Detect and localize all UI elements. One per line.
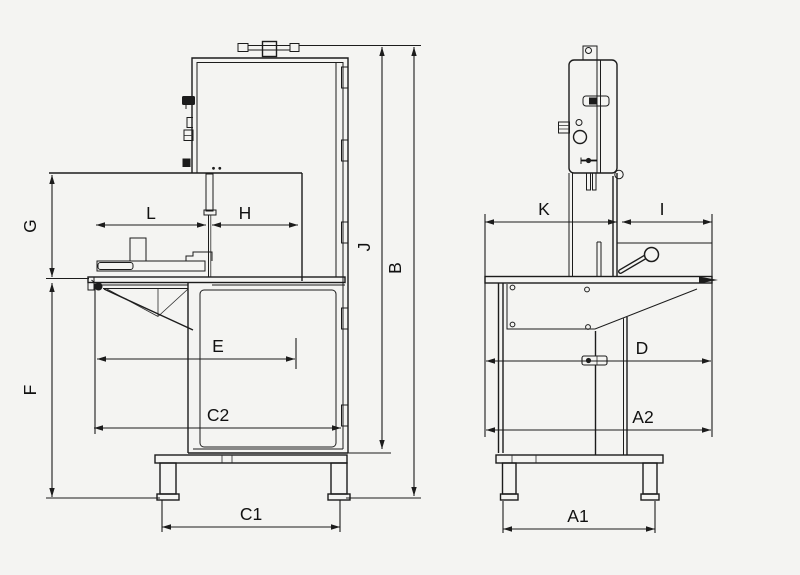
dimension-C1: C1 bbox=[162, 504, 340, 530]
tilt-lever bbox=[621, 248, 659, 272]
door-latches-part bbox=[182, 96, 195, 105]
dimension-I: I bbox=[622, 199, 712, 225]
table-support-bracket-part bbox=[104, 289, 193, 330]
cutting-table-side-part bbox=[485, 277, 712, 284]
blade-and-column-side-part bbox=[569, 173, 573, 277]
dimension-G: G bbox=[20, 175, 55, 277]
dimension-label-A1: A1 bbox=[567, 506, 588, 526]
cutting-table-front-part bbox=[95, 283, 103, 291]
pusher-plate-part bbox=[130, 238, 146, 261]
pusher-plate-part bbox=[98, 263, 133, 270]
dimension-label-K: K bbox=[538, 199, 550, 219]
front-view bbox=[49, 42, 350, 501]
dimension-J-mark bbox=[379, 440, 384, 449]
dimension-K: K bbox=[485, 199, 617, 225]
dimension-B-mark bbox=[411, 47, 416, 56]
dimension-J-mark bbox=[379, 47, 384, 56]
base-legs-side-part bbox=[643, 463, 657, 494]
door-latches-part bbox=[183, 159, 191, 168]
dimension-G-mark bbox=[49, 268, 54, 277]
base-legs-front-part bbox=[222, 455, 232, 463]
dimension-label-E: E bbox=[212, 336, 224, 356]
pivot-boss bbox=[615, 170, 623, 178]
dimension-A1-mark bbox=[503, 526, 512, 531]
large-dial bbox=[574, 131, 587, 144]
dimension-G-mark bbox=[49, 175, 54, 184]
saw-head-side-part bbox=[593, 173, 597, 190]
upper-wheel-housing bbox=[49, 58, 348, 453]
dimension-label-L: L bbox=[146, 203, 156, 223]
base-legs-side-part bbox=[496, 455, 663, 463]
blade-guide-assembly-part bbox=[218, 167, 221, 170]
blade-and-column-side-part bbox=[597, 242, 601, 277]
blade-tension-handle bbox=[238, 42, 299, 57]
dimension-A2-mark bbox=[486, 427, 495, 432]
table-support-bracket bbox=[95, 285, 193, 330]
dimension-label-F: F bbox=[20, 385, 40, 396]
dimension-H-mark bbox=[212, 222, 221, 227]
diagram-canvas: GFJBLHEC2C1KIDA2A1 bbox=[0, 0, 800, 575]
dimension-F-mark bbox=[49, 283, 54, 292]
saw-head-side bbox=[559, 46, 624, 190]
side-view bbox=[485, 46, 718, 500]
door-latches bbox=[182, 96, 195, 167]
blade-tension-handle-part bbox=[248, 46, 290, 51]
dimension-H-mark bbox=[289, 222, 298, 227]
tension-knob-part bbox=[559, 122, 570, 133]
dimension-K-mark bbox=[485, 219, 494, 224]
dimension-L: L bbox=[96, 203, 206, 228]
guide-handle bbox=[581, 158, 597, 165]
saw-head-side-part bbox=[587, 173, 591, 190]
blade-and-column-side-part bbox=[613, 173, 617, 277]
door-hinges-part bbox=[342, 67, 349, 88]
small-dial bbox=[576, 120, 582, 126]
base-legs-front-part bbox=[160, 463, 176, 494]
base-legs-side-part bbox=[641, 494, 659, 500]
dimension-B-mark bbox=[411, 487, 416, 496]
bandsaw-dimension-drawing: GFJBLHEC2C1KIDA2A1 bbox=[0, 0, 800, 575]
dimension-H: H bbox=[212, 203, 298, 228]
base-legs-front bbox=[155, 455, 350, 500]
dimension-A2-mark bbox=[702, 427, 711, 432]
dimension-label-D: D bbox=[636, 338, 649, 358]
upper-wheel-housing-part bbox=[197, 63, 343, 450]
base-legs-side bbox=[496, 455, 663, 500]
saw-head-side-part bbox=[589, 98, 597, 105]
door-hinges-part bbox=[342, 308, 349, 329]
dimension-label-I: I bbox=[660, 199, 665, 219]
dimension-L-mark bbox=[197, 222, 206, 227]
under-table-enclosure-part bbox=[507, 284, 697, 329]
blade-guide-assembly bbox=[204, 167, 221, 277]
base-legs-side-part bbox=[503, 463, 517, 494]
blade-guide-assembly-part bbox=[206, 174, 213, 211]
dimension-D-mark bbox=[486, 358, 495, 363]
tension-knob-part bbox=[559, 126, 570, 130]
saw-head-side-part bbox=[586, 48, 592, 54]
door-hinges-part bbox=[342, 405, 349, 426]
dimension-E-mark bbox=[286, 356, 295, 361]
dimension-I-mark bbox=[703, 219, 712, 224]
base-legs-front-part bbox=[331, 463, 347, 494]
dimension-C1-mark bbox=[331, 524, 340, 529]
dimension-label-G: G bbox=[20, 219, 40, 233]
blade-tension-handle-part bbox=[290, 44, 299, 52]
cutting-table-front-part bbox=[88, 277, 345, 283]
dimension-J: J bbox=[354, 47, 385, 449]
dimension-L-mark bbox=[96, 222, 105, 227]
dimension-C2: C2 bbox=[94, 405, 341, 431]
dimension-label-J: J bbox=[354, 243, 374, 252]
dimension-B: B bbox=[385, 47, 417, 496]
dimension-C1-mark bbox=[162, 524, 171, 529]
base-legs-front-part bbox=[155, 455, 347, 463]
dimension-F-mark bbox=[49, 488, 54, 497]
tilt-lever-part bbox=[645, 248, 659, 262]
tension-knob bbox=[559, 122, 570, 133]
dimension-layer: GFJBLHEC2C1KIDA2A1 bbox=[20, 46, 712, 534]
tilt-lever-part bbox=[621, 257, 647, 272]
blade-tension-handle-part bbox=[263, 42, 277, 57]
dimension-F: F bbox=[20, 283, 55, 497]
dimension-label-C2: C2 bbox=[207, 405, 229, 425]
door-hinges bbox=[342, 67, 349, 426]
dimension-A1: A1 bbox=[503, 506, 655, 532]
under-table-enclosure-part bbox=[510, 285, 515, 290]
saw-head-side-part bbox=[597, 60, 601, 173]
under-table-enclosure bbox=[499, 283, 698, 453]
pedestal-column bbox=[582, 317, 627, 455]
under-table-enclosure-part bbox=[499, 283, 504, 453]
pusher-plate bbox=[97, 238, 212, 271]
blade-tension-handle-part bbox=[238, 44, 248, 52]
saw-head-side-part bbox=[569, 60, 617, 173]
dimension-D-mark bbox=[702, 358, 711, 363]
dimension-label-C1: C1 bbox=[240, 504, 262, 524]
table-support-bracket-part bbox=[158, 289, 188, 317]
dimension-E: E bbox=[97, 336, 295, 362]
blade-guide-assembly-part bbox=[212, 167, 215, 170]
guide-handle-part bbox=[586, 158, 591, 163]
cutting-table-side bbox=[485, 277, 718, 284]
base-legs-front-part bbox=[328, 494, 350, 500]
door-hinges-part bbox=[342, 222, 349, 243]
under-table-enclosure-part bbox=[510, 322, 515, 327]
lower-cabinet bbox=[188, 282, 348, 453]
dimension-A2: A2 bbox=[486, 407, 711, 433]
upper-wheel-housing-part bbox=[192, 58, 348, 453]
base-legs-side-part bbox=[512, 455, 536, 463]
base-legs-side-part bbox=[501, 494, 519, 500]
dimension-E-mark bbox=[97, 356, 106, 361]
dimension-A1-mark bbox=[646, 526, 655, 531]
base-legs-front-part bbox=[157, 494, 179, 500]
dimension-label-H: H bbox=[239, 203, 252, 223]
dimension-label-B: B bbox=[385, 262, 405, 274]
dimension-I-mark bbox=[622, 219, 631, 224]
dimension-label-A2: A2 bbox=[632, 407, 653, 427]
door-hinges-part bbox=[342, 140, 349, 161]
under-table-enclosure-part bbox=[585, 287, 590, 292]
